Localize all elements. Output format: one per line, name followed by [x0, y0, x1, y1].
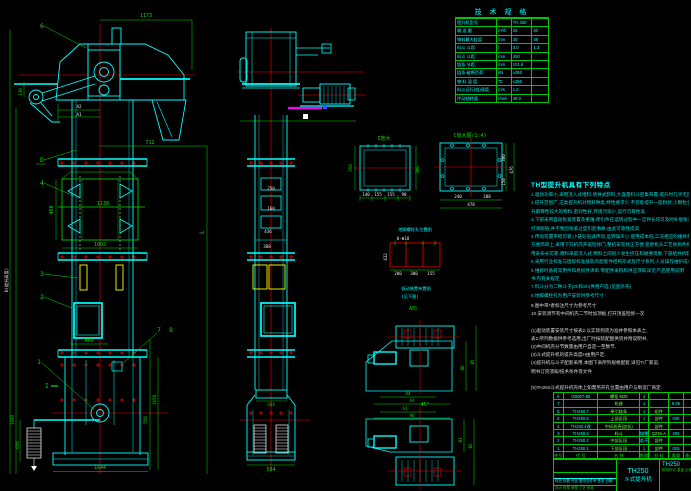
- dim-400: 400: [84, 338, 93, 344]
- anchor-left-dim: 432: [383, 253, 388, 261]
- dim-a3: A3: [409, 398, 415, 403]
- part-note: [684, 399, 691, 406]
- spec-row: 输 送 量 m³/h 25 40: [456, 26, 548, 34]
- detail-c-label: C放大图(1:4): [453, 132, 486, 139]
- feature-notes-title: TH型提升机具有下列特点: [531, 180, 689, 191]
- detail-c-b1: 240: [454, 194, 462, 199]
- side-view: 250 160 436 388 344 594: [237, 28, 366, 473]
- spec-label: 料斗运行(链)速度: [456, 86, 497, 93]
- anchor-b2: 300: [410, 271, 418, 276]
- spec-value-2: [532, 95, 548, 102]
- spec-value-2: 48: [532, 36, 548, 43]
- boot-section: [53, 357, 148, 465]
- balloon-d: D: [40, 156, 44, 164]
- parts-list-row: 7 机座 1 9.05: [554, 399, 691, 406]
- detail-c-b3: 478: [467, 202, 475, 207]
- header-code: 代 号: [564, 451, 598, 458]
- part-note: [684, 414, 691, 421]
- dim-436: 436: [264, 229, 272, 234]
- dim-a6: A6: [409, 413, 415, 418]
- part-name: 中部区段: [598, 436, 640, 443]
- part-note: [684, 392, 691, 399]
- spec-unit: ℃: [497, 78, 512, 85]
- view-a-label: A向: [409, 305, 417, 312]
- anchor-grid: [390, 243, 440, 267]
- balloon-1: 1: [37, 358, 41, 366]
- spec-value-2: 1.3: [532, 44, 548, 51]
- part-qty: 4: [640, 392, 650, 399]
- dim-344: 344: [267, 402, 275, 407]
- part-code: TH250.1: [564, 444, 598, 451]
- length-label: L: [198, 230, 206, 234]
- balloon-8: 8: [169, 326, 173, 334]
- spec-value-2: [532, 61, 548, 68]
- front-centerlines: [18, 24, 196, 474]
- part-number: 1: [554, 444, 564, 451]
- spec-value-2: [532, 86, 548, 93]
- parts-list-row: 1 TH250.1 下部区段 1 部件 025: [554, 444, 691, 451]
- parts-list-row: 8 GB907-86 螺栓 M20 4: [554, 392, 691, 399]
- spec-value-1: 25: [512, 27, 533, 34]
- note-line: 7.料斗分为二种斗子(Zh和Sh)供用户选 (见图外形): [531, 283, 689, 291]
- part-material: 部件: [649, 436, 669, 443]
- anchor-holes-label: 8-Φ18: [397, 236, 410, 241]
- spec-label: 链条 节距: [456, 61, 497, 68]
- part-material: 部件: [649, 422, 669, 429]
- part-weight: 200: [669, 429, 683, 436]
- order-note-line: (3)斗式提升机的提升高度H由用户定,: [531, 351, 689, 359]
- spec-row: 物料最大粒度 mm 30 48: [456, 35, 548, 43]
- height-label: H(提升高度): [3, 268, 10, 292]
- dim-450: 450: [49, 205, 55, 214]
- order-note-line: [531, 376, 689, 384]
- part-number: 8: [554, 392, 564, 399]
- parts-list-row: 6 TH250.7 牵引链条 1 组件: [554, 407, 691, 414]
- part-material: [649, 392, 669, 399]
- side-bolt-crosses: [249, 161, 293, 165]
- part-number: 6: [554, 407, 564, 414]
- dim-712: 712: [145, 140, 154, 146]
- note-line: 升磨琢性较大的物料,密封性好,环境污染少,运行可靠性高: [531, 208, 689, 216]
- dim-b2b: B2: [468, 443, 473, 449]
- spec-value-1: 3.0: [512, 44, 533, 51]
- drive-arrangement-top: A4 A3 B6 B5: [366, 320, 476, 404]
- detail-view-i: I放大 300 350 140 155 155 90: [348, 135, 420, 201]
- note-line: 6.维修时备有常用件和易损件清单,零配件采购和供应须知详见'产品使用说明: [531, 267, 689, 275]
- dim-b5: B5: [470, 359, 475, 365]
- side-inspection-door: [261, 303, 295, 336]
- detail-i-dim-left: 350: [348, 164, 353, 172]
- spec-value-1: 101.6: [512, 61, 533, 68]
- part-name: 中间机壳(加长): [598, 422, 640, 429]
- detail-i-b2: 155: [374, 192, 382, 197]
- dim-text-blob: [303, 114, 308, 119]
- bucket-guide-right: [116, 265, 123, 290]
- part-material: Q235-A: [649, 429, 669, 436]
- signature-roles: 设计 校核 审核 工艺 批准: [554, 485, 616, 491]
- dim-160: 160: [267, 206, 275, 211]
- blue-marker: [323, 105, 327, 109]
- inspection-door-inner: [77, 306, 99, 335]
- dim-594: 594: [266, 467, 275, 473]
- part-weight: [669, 392, 683, 399]
- spec-unit: mm: [497, 36, 512, 43]
- detail-c-r2: 150: [501, 178, 506, 186]
- order-note-line: 表2.所列数据供参考选用,出厂时按装配图供货并附说明书,: [531, 335, 689, 343]
- note-line: 打滑脱链,并不致因张紧过度引起事故,由此可靠性提高: [531, 225, 689, 233]
- parts-list-row: 5 TH250.6 上部区段 1 部件 035: [554, 414, 691, 421]
- spec-unit: m³/h: [497, 27, 512, 34]
- parts-list-header: 件号 代 号 名 称 数量 材 料 重量 备注: [554, 451, 691, 458]
- part-qty: 按需: [640, 429, 650, 436]
- part-number: 5: [554, 414, 564, 421]
- order-note-line: (5)TH250斗式提升机壳体上如需另开孔位置由用户与制造厂商定.: [531, 384, 689, 392]
- spec-value-2: 40: [532, 27, 548, 34]
- spec-value-1: 450: [512, 53, 533, 60]
- part-number: 4: [554, 422, 564, 429]
- dim-b1b: B1: [458, 437, 463, 443]
- detail-c-dim-lines: [440, 143, 514, 208]
- part-qty: 若干: [640, 436, 650, 443]
- part-number: 3: [554, 429, 564, 436]
- spec-table-grid: 提升机型号 TH 250 输 送 量 m³/h 25 40 物料最大粒度 mm …: [455, 17, 549, 103]
- balloon-4: 4: [40, 179, 44, 187]
- header-name: 名 称: [598, 451, 640, 458]
- detail-i-b1: 140: [362, 192, 370, 197]
- part-note: [684, 429, 691, 436]
- order-note-line: (2)中间机壳分节数量由用户自定一至数节,: [531, 343, 689, 351]
- dim-a4: A4: [405, 391, 411, 396]
- dim-1433: 1433: [10, 414, 15, 425]
- part-code: TH250.4改: [564, 422, 598, 429]
- part-name: 牵引链条: [598, 407, 640, 414]
- note-line: 4.传动装置平稳可靠,小链轮低速传动,运转噪声小,使用成本低,工况相应的维修费用…: [531, 233, 689, 241]
- spec-label: 输 送 量: [456, 27, 497, 34]
- header-material: 材 料: [649, 451, 669, 458]
- spec-unit: mm: [497, 61, 512, 68]
- dim-1130: 1130: [97, 201, 109, 207]
- part-note: [684, 444, 691, 451]
- parts-list-row: 4 TH250.4改 中间机壳(加长) 部件: [554, 422, 691, 429]
- dim-550: 550: [143, 416, 148, 424]
- dim-1650: 1650: [152, 394, 157, 405]
- order-note-line: 明书订货须知/技术条件等文件: [531, 368, 689, 376]
- part-code: GB907-86: [564, 392, 598, 399]
- dim-a2: A2: [76, 104, 82, 109]
- balloon-2: 2: [40, 293, 44, 301]
- spec-table: 技 术 规 格 提升机型号 TH 250 输 送 量 m³/h 25 40: [455, 8, 549, 103]
- order-note-line: (4)提升机与斗子配套采用,本图下表所列规格配套,详见T/厂家说,: [531, 359, 689, 367]
- title-block-revision-area: 标记 处数 分区 更改文件号 签名 日期 设计 校核 审核 工艺 批准: [554, 460, 617, 491]
- spec-unit: m/s: [497, 86, 512, 93]
- spec-label: 物料最大粒度: [456, 36, 497, 43]
- spec-value-1: ≤250: [512, 78, 533, 85]
- spec-value-2: [532, 53, 548, 60]
- side-inspection-door-inner: [264, 306, 292, 333]
- anchor-caption-2: (见下图): [401, 294, 419, 300]
- detail-c-r1: 300: [501, 154, 506, 162]
- part-name: 螺栓 M20: [598, 392, 640, 399]
- order-notes: 9.图中带*者标注尺寸为参考尺寸 10.安装调节有中间机壳二节时加顶板,打开顶盖…: [531, 302, 689, 392]
- header-qty: 数量: [640, 451, 650, 458]
- spec-unit: kN: [497, 69, 512, 76]
- side-platform: [256, 390, 287, 398]
- part-material: 部件: [649, 414, 669, 421]
- part-name: 机座: [598, 399, 640, 406]
- spec-value-1: 1.2: [512, 86, 533, 93]
- part-material: [649, 399, 669, 406]
- balloon-6: 6: [40, 22, 44, 30]
- part-code: TH250.6: [564, 414, 598, 421]
- spec-row: 链条 节距 mm 101.6: [456, 60, 548, 68]
- drive-arrangement-bottom: A1 A6 B1 B2: [366, 406, 474, 490]
- spec-label: 料斗 斗距: [456, 53, 497, 60]
- spec-row: 料斗运行(链)速度 m/s 1.2: [456, 85, 548, 93]
- dim-388: 388: [263, 244, 271, 249]
- spec-label: 提升机型号: [456, 19, 497, 26]
- drive-top-dims: [374, 326, 476, 404]
- dim-1002: 1002: [94, 242, 106, 248]
- take-up-device: [27, 420, 100, 471]
- side-bucket-right: [269, 265, 285, 289]
- dim-1644: 1644: [94, 465, 106, 471]
- title-block-name-cell: TH250 斗式提升机: [617, 460, 660, 491]
- part-qty: 1: [640, 444, 650, 451]
- part-code: [564, 399, 598, 406]
- part-weight: [669, 436, 683, 443]
- drawing-model: TH250: [627, 467, 648, 476]
- dim-250: 250: [267, 186, 275, 191]
- spec-unit: [497, 19, 512, 26]
- part-number: 7: [554, 399, 564, 406]
- anchor-caption-1: 驱动装置布置图: [401, 285, 430, 292]
- parts-list-row: 3 TH250.3 料斗 按需 Q235-A 200: [554, 429, 691, 436]
- part-qty: 1: [640, 414, 650, 421]
- spec-value-1: 30: [512, 36, 533, 43]
- flange-bolt-crosses: [60, 161, 136, 165]
- spec-row: 料斗 斗容 l 3.0 1.3: [456, 43, 548, 51]
- part-code: TH250.2: [564, 436, 598, 443]
- spec-value-2: [532, 78, 548, 85]
- part-material: 部件: [649, 444, 669, 451]
- dim-1173: 1173: [140, 13, 152, 19]
- anchor-b1: 200: [394, 271, 402, 276]
- spec-value-1: 48.0: [512, 95, 533, 102]
- title-block-number-cell: TH250 阶段标记 重量 比例: [660, 460, 691, 491]
- anchor-b3: 155: [427, 271, 435, 276]
- dim-a1: A1: [76, 112, 82, 117]
- spec-row: 提升机型号 TH 250: [456, 18, 548, 26]
- parts-list-row: 2 TH250.2 中部区段 若干 部件: [554, 436, 691, 443]
- side-centerlines: [237, 28, 366, 472]
- part-code: TH250.7: [564, 407, 598, 414]
- spec-row: 物 料 温 度 ℃ ≤250: [456, 77, 548, 85]
- detail-i-dim-right: 300: [415, 166, 420, 174]
- part-qty: 1: [640, 407, 650, 414]
- spec-table-title: 技 术 规 格: [455, 8, 549, 17]
- feature-notes: TH型提升机具有下列特点 1.驱动功率小,采用流入式喂料,诱导式卸料,大容量料斗…: [531, 180, 689, 300]
- spec-unit: l: [497, 44, 512, 51]
- spec-row: 链条 破断负荷 kN ≥350: [456, 68, 548, 76]
- detail-i-label: I放大: [377, 135, 390, 142]
- part-qty: [640, 422, 650, 429]
- drawing-product-name: 斗式提升机: [624, 476, 652, 484]
- spec-value-2: [532, 69, 548, 76]
- parts-list: 8 GB907-86 螺栓 M20 4 7 机座 1 9.05: [553, 392, 691, 459]
- part-name: 下部区段: [598, 444, 640, 451]
- part-code: TH250.3: [564, 429, 598, 436]
- part-note: [684, 436, 691, 443]
- front-view: 1173 A2 A1 712 450 1130 1002 400 1644 14…: [3, 13, 207, 474]
- note-line: 方便简单上,采用下方机壳开设检修门,整机安装找正方便,变更机头工艺易损件拆换亦方…: [531, 241, 689, 249]
- spec-unit: mm: [497, 53, 512, 60]
- part-name: 料斗: [598, 429, 640, 436]
- inspection-door: [74, 303, 102, 338]
- feature-notes-lines: 1.驱动功率小,采用流入式喂料,诱导式卸料,大容量料斗密集布置,提升时几乎无回料…: [531, 191, 689, 300]
- part-weight: 9.05: [669, 399, 683, 406]
- stage-labels: 阶段标记 重量 比例: [662, 468, 691, 473]
- spec-row: 料斗 斗距 mm 450: [456, 52, 548, 60]
- part-weight: [669, 407, 683, 414]
- part-material: 组件: [649, 407, 669, 414]
- anchor-bolt-detail: 地脚螺栓孔位置图 8-Φ18 432 200 300 155 驱动装置布置图 (…: [383, 226, 440, 312]
- spec-value-1: ≥350: [512, 69, 533, 76]
- note-line: 3.下部采用自动张紧装置及重锤,牵引件在运转过程中一旦伸长均可及时补偿张紧,防止: [531, 216, 689, 224]
- spec-value-2: [532, 19, 548, 26]
- note-line: 5.采用行业标准与国际标准接轨的配套件结构形式及尺寸系列,人员操作维护成本低费用…: [531, 258, 689, 266]
- spec-label: 料斗 斗容: [456, 44, 497, 51]
- anchor-title: 地脚螺栓孔位置图: [398, 226, 432, 233]
- dim-130: 130: [18, 88, 23, 96]
- part-note: [684, 422, 691, 429]
- note-line: 用寿命长可靠,喂料采取流入式,物料之间很少发生挤压和碰撞现象,下部给件拆卸方便: [531, 250, 689, 258]
- detail-view-c: C放大图(1:4) 240 200 478 300 150 476: [434, 132, 514, 208]
- spec-unit: r/min: [497, 95, 512, 102]
- order-note-line: (1)驱动装置安装尺寸按表2,以实际到货为准并参照本表之,: [531, 327, 689, 335]
- spec-value-1: TH 250: [512, 19, 533, 26]
- part-weight: [669, 422, 683, 429]
- parts-list-rows: 8 GB907-86 螺栓 M20 4 7 机座 1 9.05: [554, 392, 691, 451]
- header-no: 件号: [554, 451, 564, 458]
- part-name: 上部区段: [598, 414, 640, 421]
- part-note: [684, 407, 691, 414]
- order-note-line: 9.图中带*者标注尺寸为参考尺寸: [531, 302, 689, 310]
- balloon-7: 7: [157, 326, 161, 334]
- order-note-line: [531, 318, 689, 326]
- spec-row: 传动轴转速 r/min 48.0: [456, 94, 548, 102]
- note-line: 书'内有关规定: [531, 275, 689, 283]
- detail-c-b2: 200: [483, 194, 491, 199]
- backstop-arm: [14, 76, 95, 122]
- part-qty: 1: [640, 399, 650, 406]
- part-weight: 025: [669, 444, 683, 451]
- note-line: 2.提升范围广,这类提升机对物料种类,特性要求少,不仅能提升一般粉状,小颗粒状物…: [531, 199, 689, 207]
- header-note: 备注: [684, 451, 691, 458]
- dim-a1b: A1: [402, 406, 408, 411]
- spec-label: 传动轴转速: [456, 95, 497, 102]
- detail-c-r3: 476: [509, 166, 514, 174]
- spec-label: 物 料 温 度: [456, 78, 497, 85]
- balloon-3: 3: [40, 270, 44, 278]
- title-block: 标记 处数 分区 更改文件号 签名 日期 设计 校核 审核 工艺 批准 TH25…: [553, 459, 691, 491]
- cad-drawing-canvas: 1173 A2 A1 712 450 1130 1002 400 1644 14…: [0, 0, 691, 491]
- spec-label: 链条 破断负荷: [456, 69, 497, 76]
- angle-45-label: 45°: [420, 402, 429, 408]
- detail-i-b4: 90: [401, 192, 407, 197]
- dim-650: 650: [15, 441, 20, 449]
- dim-b6: B6: [460, 365, 465, 371]
- order-note-line: 10.安装调节有中间机壳二节时加顶板,打开顶盖检修一次: [531, 310, 689, 318]
- part-weight: 035: [669, 414, 683, 421]
- header-weight: 重量: [669, 451, 683, 458]
- bucket-guide-left: [80, 265, 87, 290]
- note-line: 8.地脚螺栓孔为用户安装时参考尺寸: [531, 292, 689, 300]
- section-mark-i: I: [45, 382, 49, 390]
- part-number: 2: [554, 436, 564, 443]
- detail-i-b3: 155: [387, 192, 395, 197]
- side-head: [240, 32, 331, 88]
- note-line: 1.驱动功率小,采用流入式喂料,诱导式卸料,大容量料斗密集布置,提升时几乎无回料…: [531, 191, 689, 199]
